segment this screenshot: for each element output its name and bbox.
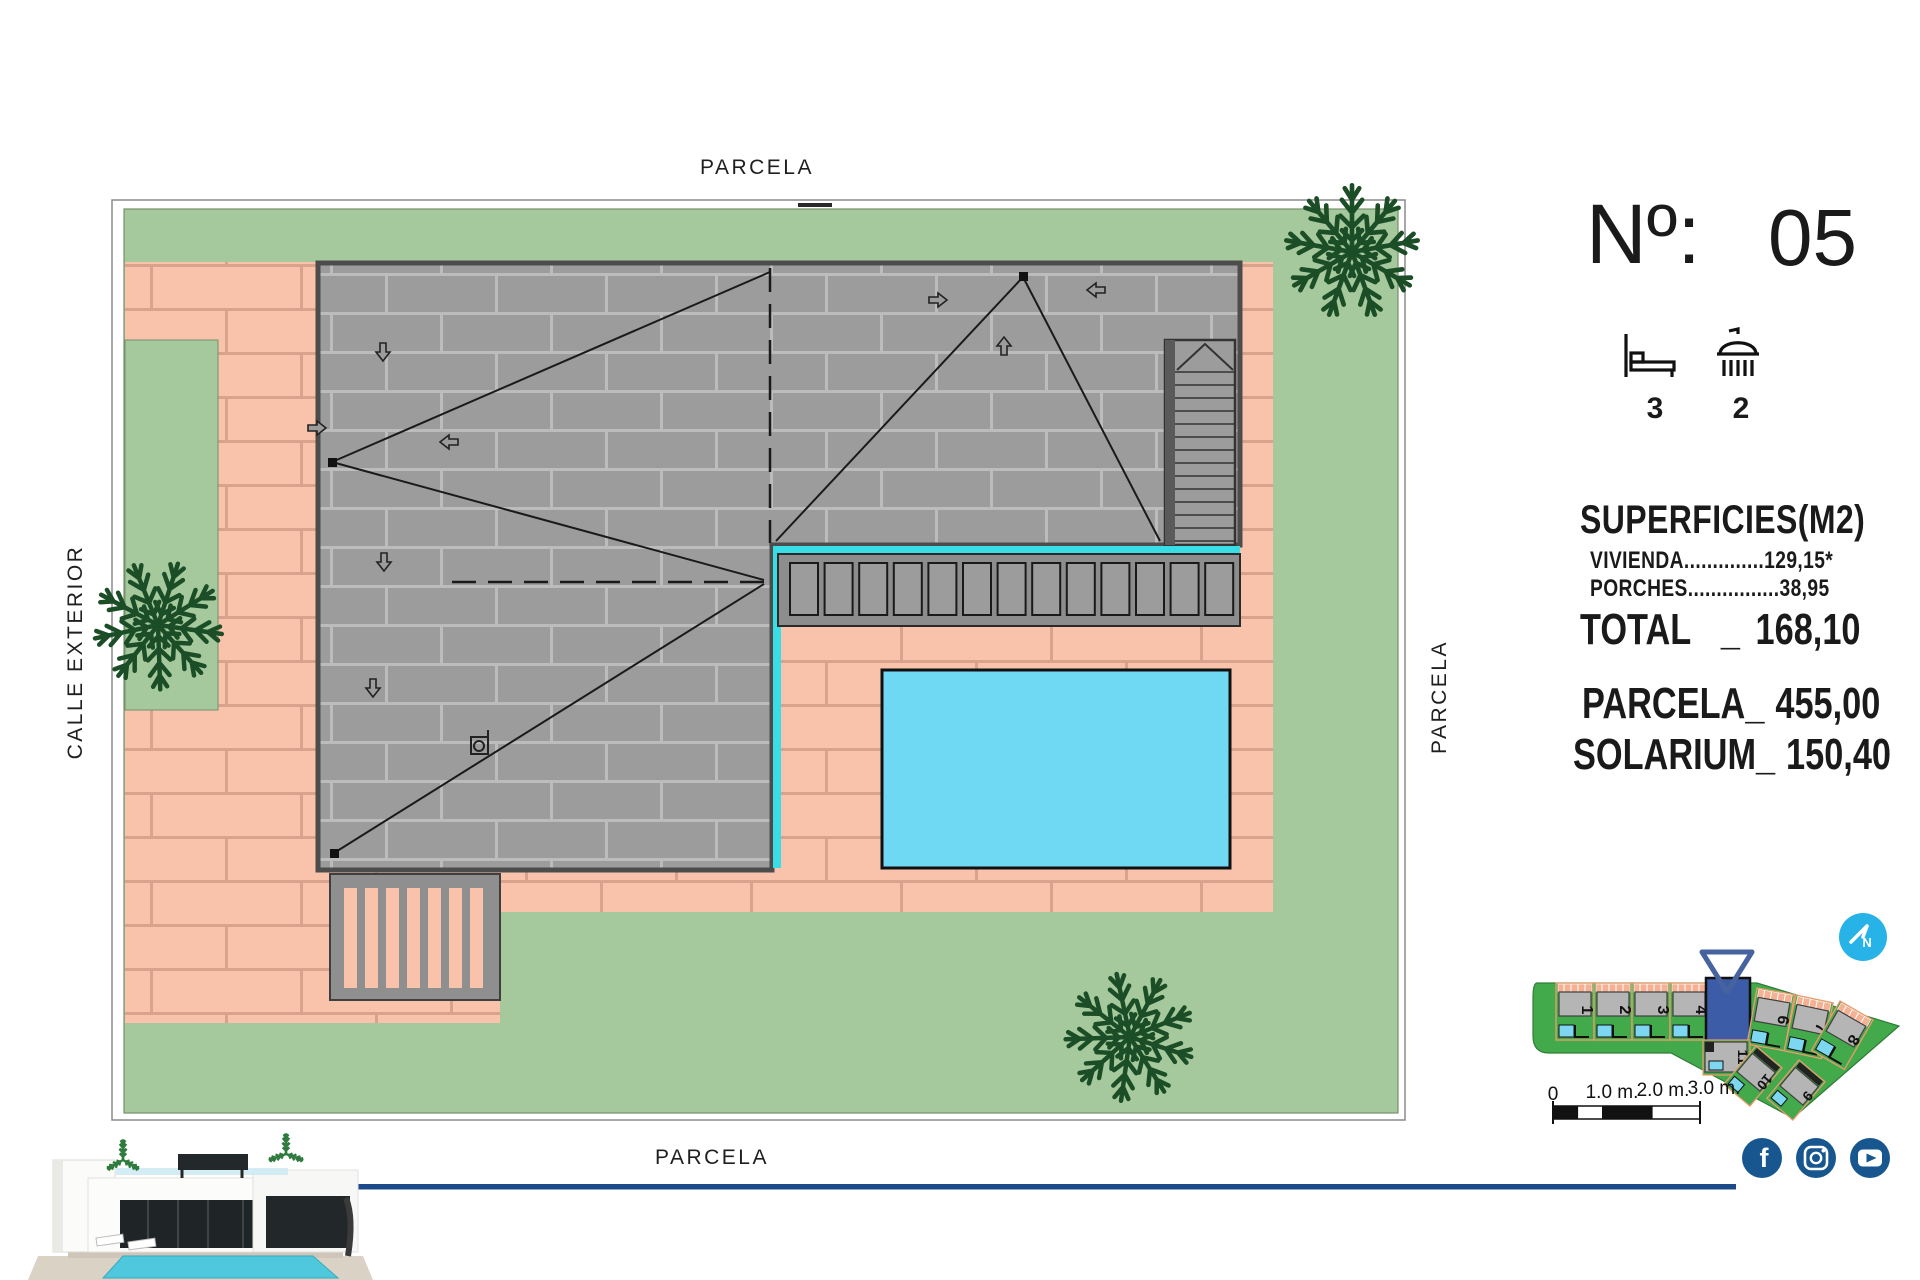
minimap-plot: 4 [1670,983,1709,1040]
vivienda-label: VIVIENDA [1590,547,1684,574]
porch [778,554,1240,626]
solarium-label: SOLARIUM_ [1573,730,1775,779]
social-links: f [1742,1138,1890,1178]
svg-text:2.0 m.: 2.0 m. [1637,1080,1690,1101]
svg-text:N: N [1862,935,1871,950]
svg-text:2: 2 [1616,1006,1633,1015]
swimming-pool [882,670,1230,868]
svg-text:f: f [1760,1143,1770,1173]
bed-icon [1622,332,1678,378]
svg-text:3: 3 [1654,1006,1671,1015]
villa-render-thumbnail [28,1133,373,1280]
parcela-label: PARCELA_ [1582,679,1764,728]
leader-dots: .............. [1684,547,1764,574]
surface-total: TOTAL_168,10 [1580,608,1920,652]
porches-value: 38,95 [1780,575,1830,602]
label-calle-exterior: CALLE EXTERIOR [64,545,88,760]
label-parcela-right: PARCELA [1428,640,1452,754]
total-separator: _ [1721,605,1740,654]
youtube-icon[interactable] [1850,1138,1890,1178]
surfaces-title: SUPERFICIES(M2) [1580,500,1920,540]
label-parcela-bottom: PARCELA [655,1146,769,1170]
svg-text:1: 1 [1578,1006,1595,1015]
svg-text:1.0 m.: 1.0 m. [1586,1082,1639,1103]
facebook-icon[interactable]: f [1742,1138,1782,1178]
north-compass-icon: N [1839,913,1887,961]
parcela-value: 455,00 [1775,679,1880,728]
total-label: TOTAL [1580,605,1691,654]
minimap-plot: 3 [1632,983,1671,1040]
minimap-plot: 2 [1594,983,1633,1040]
shower-icon [1714,326,1762,382]
leader-dots: ................ [1688,575,1780,602]
brochure-page: 1 2 3 4 6 7 8 11 [0,0,1920,1280]
solarium-value: 150,40 [1786,730,1891,779]
surface-row-vivienda: VIVIENDA..............129,15* [1590,549,1894,573]
roof-stairs [1165,340,1235,545]
surface-row-porches: PORCHES................38,95 [1590,577,1889,601]
surface-parcela: PARCELA_455,00 [1582,682,1920,726]
plot-number-label: Nº: [1586,192,1701,276]
label-parcela-top: PARCELA [700,156,814,180]
footer-accent-line [332,1184,1736,1190]
minimap-plot: 1 [1556,983,1595,1040]
boundary-tick [798,203,832,207]
instagram-icon[interactable] [1796,1138,1836,1178]
total-value: 168,10 [1756,605,1861,654]
porches-label: PORCHES [1590,575,1688,602]
plot-number-value: 05 [1768,198,1857,278]
scale-bar: 0 1.0 m. 2.0 m. 3.0 m. [1548,1078,1741,1124]
bathrooms-count: 2 [1726,392,1756,426]
bedrooms-count: 3 [1640,392,1670,426]
svg-text:3.0 m.: 3.0 m. [1688,1078,1741,1099]
vivienda-value: 129,15* [1764,547,1833,574]
pergola [330,874,500,1000]
surface-solarium: SOLARIUM_150,40 [1573,733,1920,777]
